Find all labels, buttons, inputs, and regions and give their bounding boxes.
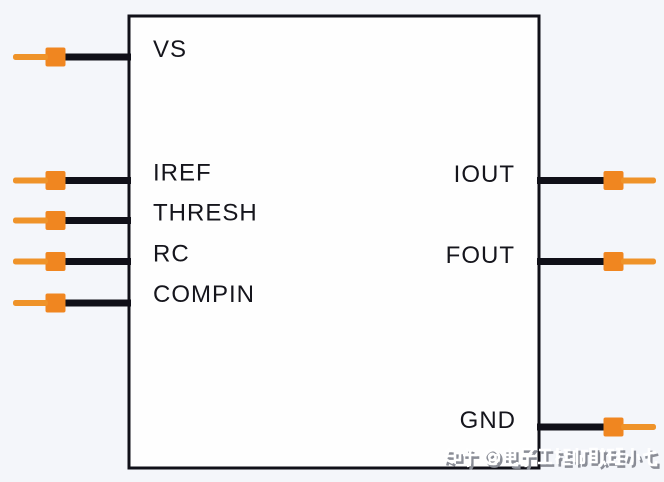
svg-text:GND: GND (460, 407, 516, 434)
svg-text:COMPIN: COMPIN (153, 281, 255, 308)
svg-text:FOUT: FOUT (446, 242, 515, 269)
svg-text:RC: RC (153, 241, 190, 268)
svg-text:IREF: IREF (153, 160, 212, 187)
svg-text:IOUT: IOUT (454, 161, 515, 188)
svg-text:THRESH: THRESH (153, 200, 258, 227)
svg-text:VS: VS (153, 36, 187, 63)
